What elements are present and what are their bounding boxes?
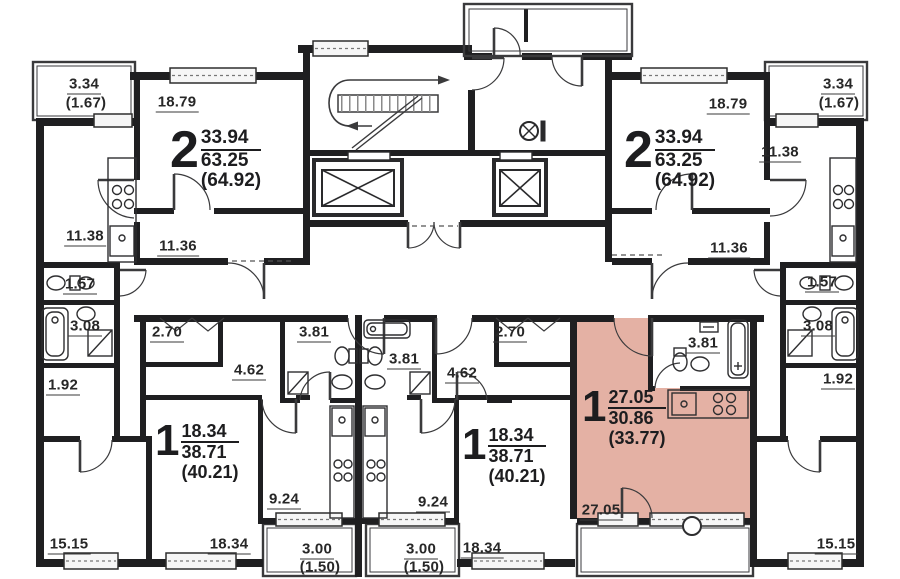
rooms-count: 2 [170, 128, 199, 172]
living-area: 18.34 [181, 422, 238, 443]
room-area-label: 4.62 [445, 365, 479, 384]
room-area-label: 2.70 [493, 324, 527, 343]
room-area-label: 3.34 [67, 76, 101, 95]
living-area: 33.94 [201, 128, 261, 151]
room-area-label: (1.50) [300, 559, 340, 576]
room-area-label: 4.62 [232, 362, 266, 381]
room-area-label: 3.08 [801, 318, 835, 337]
garbage-chute-icon [520, 121, 545, 141]
room-area-label: 3.08 [68, 318, 102, 337]
room-area-label: (1.67) [819, 95, 859, 112]
room-area-label: 11.38 [64, 228, 106, 247]
room-area-label: 2.70 [150, 324, 184, 343]
apartment-label-one-room-right: 1 18.34 38.71 (40.21) [462, 426, 546, 486]
room-area-label: 18.79 [707, 96, 750, 115]
room-area-label: 11.38 [759, 144, 801, 163]
area-with-balcony: (33.77) [608, 429, 665, 448]
total-area: 38.71 [181, 443, 238, 462]
living-area: 18.34 [488, 426, 545, 447]
room-area-label: 3.00 [404, 541, 438, 560]
rooms-count: 1 [462, 426, 486, 463]
room-area-label: 3.81 [387, 351, 421, 370]
room-area-label: 1.92 [821, 371, 855, 390]
room-area-label: 3.34 [821, 76, 855, 95]
rooms-count: 1 [582, 388, 606, 425]
total-area: 30.86 [608, 409, 665, 428]
rooms-count: 1 [155, 422, 179, 459]
total-area: 63.25 [201, 151, 261, 172]
area-with-balcony: (40.21) [488, 467, 545, 486]
apartment-label-two-room-left: 2 33.94 63.25 (64.92) [170, 128, 261, 192]
area-with-balcony: (64.92) [201, 171, 261, 192]
apartment-label-studio: 1 27.05 30.86 (33.77) [582, 388, 666, 448]
area-with-balcony: (64.92) [655, 171, 715, 192]
room-area-label: (1.50) [404, 559, 444, 576]
room-area-label: 1.57 [63, 276, 97, 295]
room-area-label: 18.79 [156, 94, 199, 113]
rooms-count: 2 [624, 128, 653, 172]
living-area: 33.94 [655, 128, 715, 151]
room-area-label: 11.36 [708, 240, 750, 259]
room-area-label: (1.67) [66, 95, 106, 112]
area-with-balcony: (40.21) [181, 463, 238, 482]
room-area-label: 3.00 [300, 541, 334, 560]
living-area: 27.05 [608, 388, 665, 409]
room-area-label: 1.57 [805, 274, 839, 293]
room-area-label: 18.34 [208, 536, 251, 555]
room-area-label: 3.81 [297, 324, 331, 343]
room-area-label: 27.05 [580, 502, 623, 521]
room-area-label: 15.15 [48, 536, 91, 555]
floor-plan: 2 33.94 63.25 (64.92) 2 33.94 63.25 (64.… [0, 0, 900, 579]
entrance-vestibule [464, 4, 632, 56]
vent-icon [683, 517, 701, 535]
room-area-label: 18.34 [461, 540, 504, 559]
apartment-label-two-room-right: 2 33.94 63.25 (64.92) [624, 128, 715, 192]
room-area-label: 3.81 [686, 335, 720, 354]
floor-plan-drawing [0, 0, 900, 579]
room-area-label: 11.36 [157, 238, 199, 257]
apartment-label-one-room-left: 1 18.34 38.71 (40.21) [155, 422, 239, 482]
elevator-shafts [314, 152, 546, 215]
room-area-label: 9.24 [416, 494, 450, 513]
room-area-label: 9.24 [267, 491, 301, 510]
total-area: 63.25 [655, 151, 715, 172]
staircase [329, 76, 450, 151]
room-area-label: 1.92 [46, 377, 80, 396]
total-area: 38.71 [488, 447, 545, 466]
kitchen-counter-right [830, 158, 856, 262]
room-area-label: 15.15 [815, 536, 858, 555]
